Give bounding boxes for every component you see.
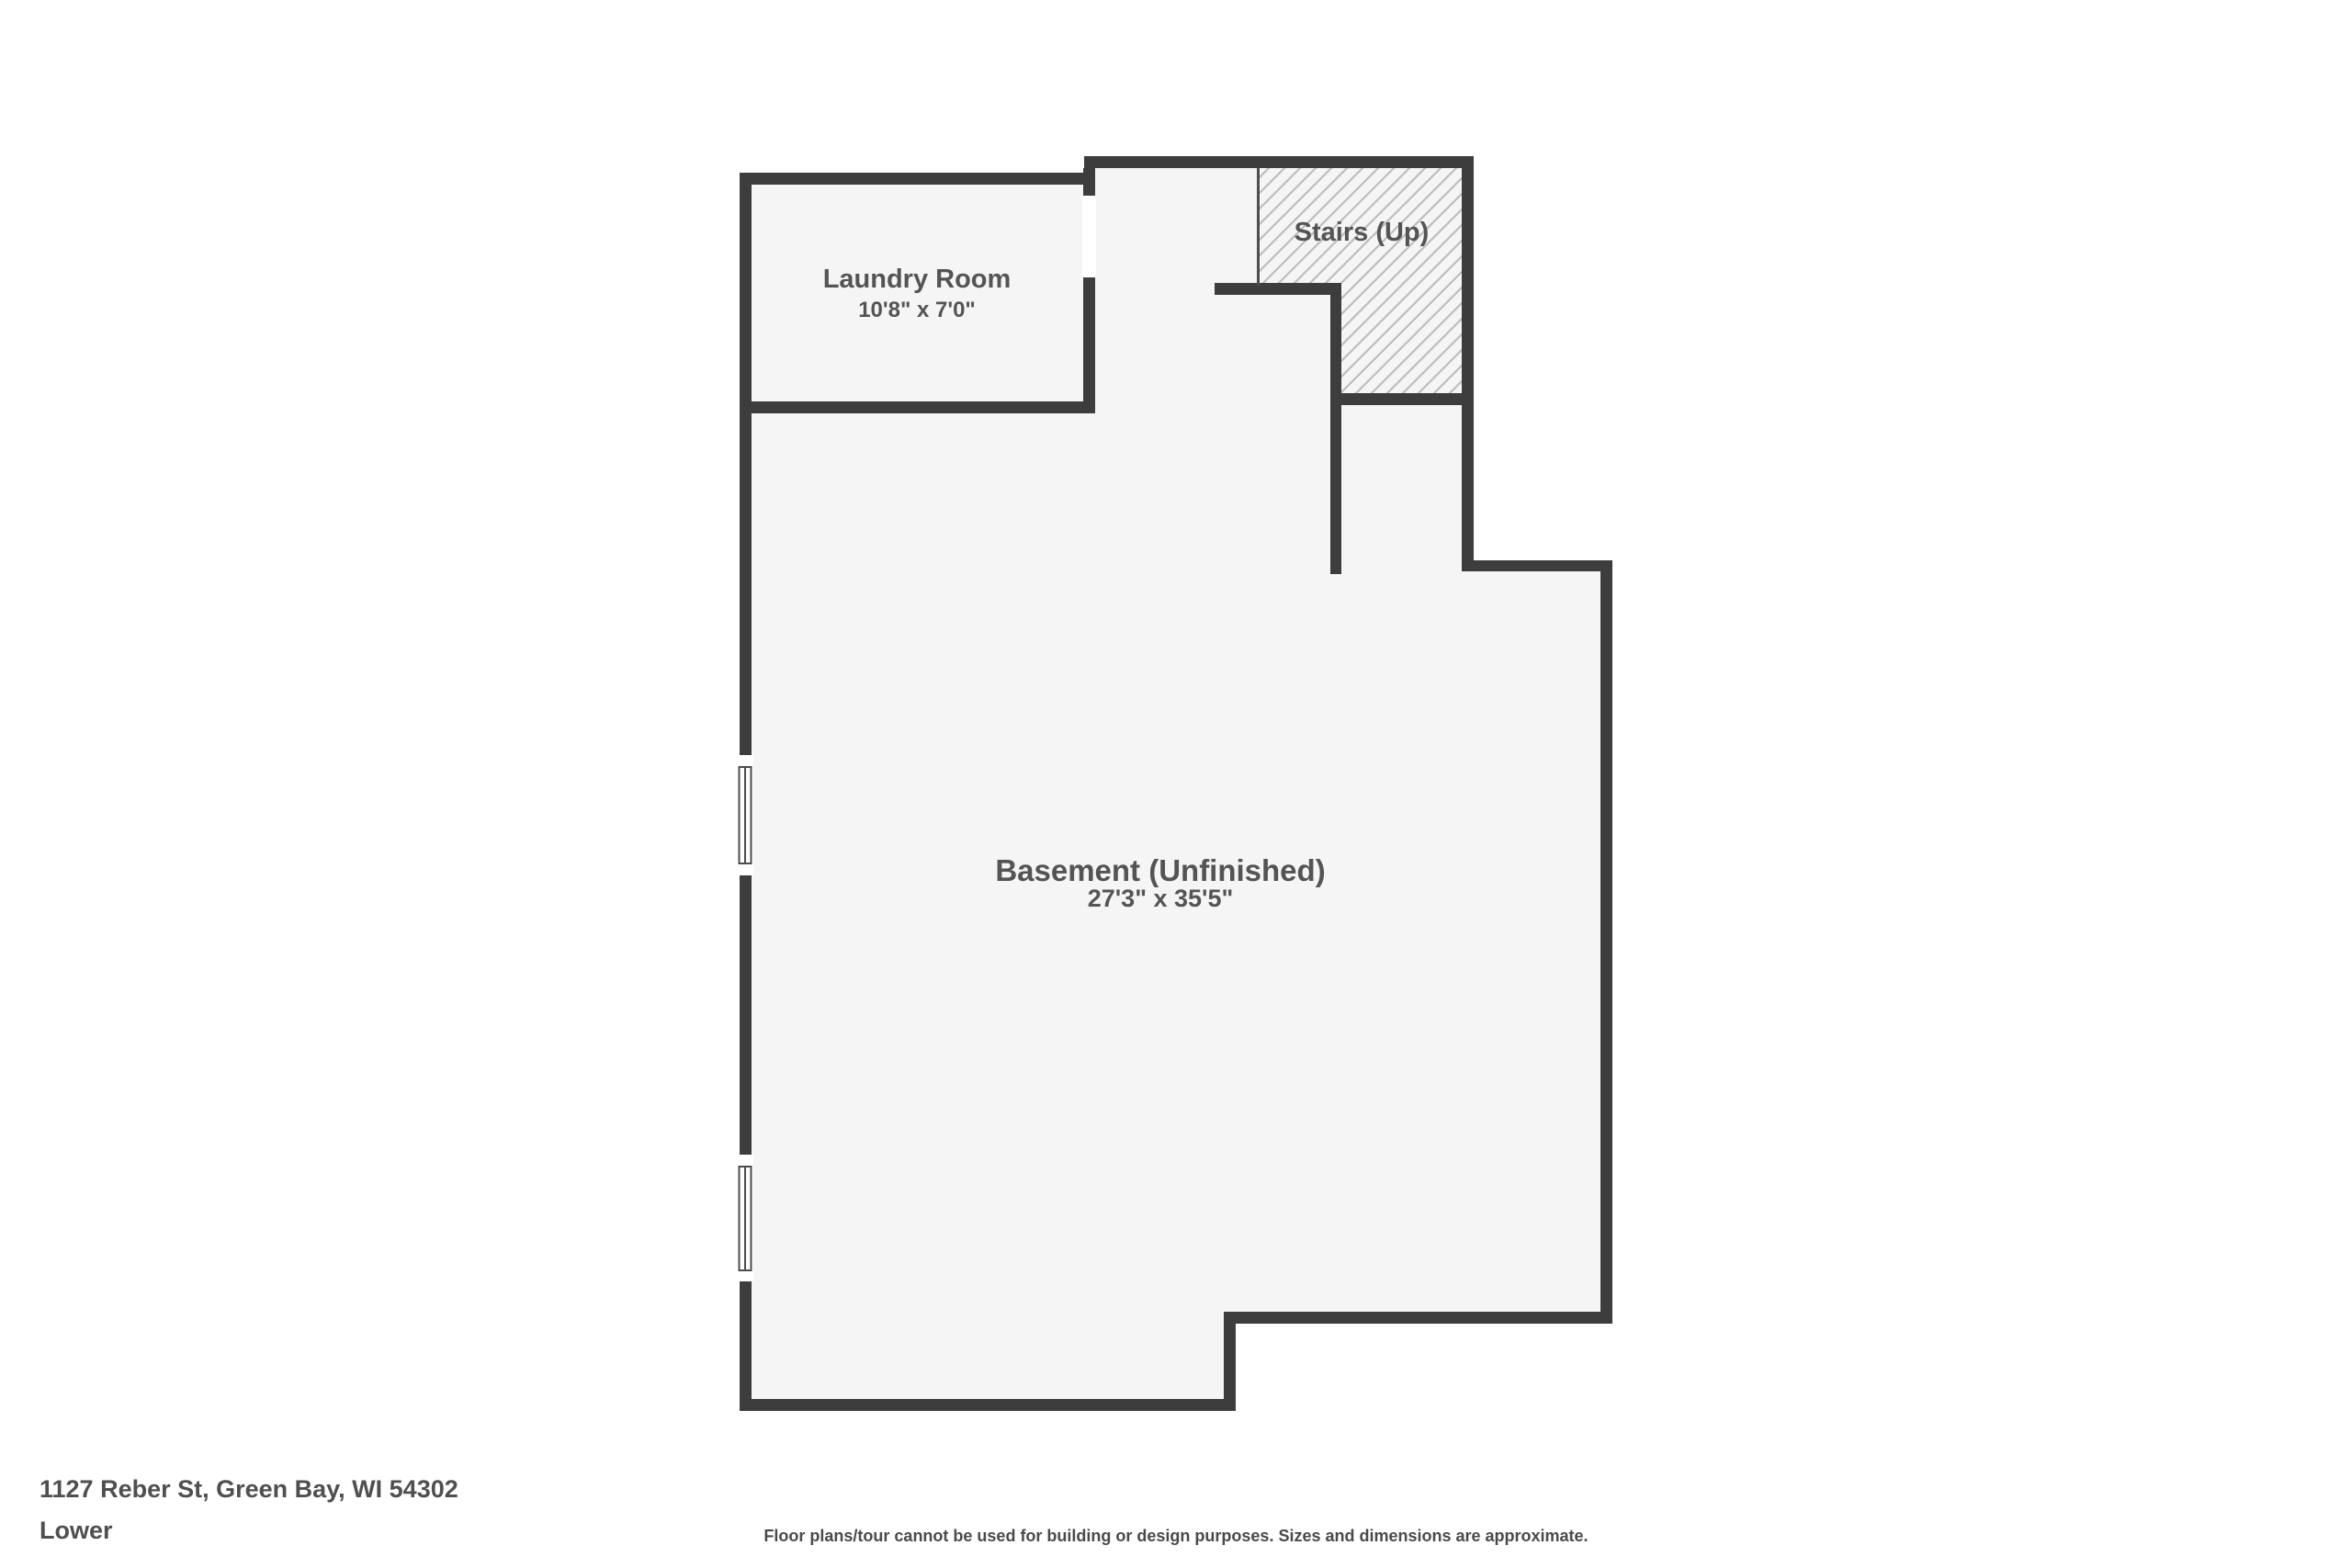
wall-upper-right — [1462, 156, 1474, 571]
wall-notch — [1224, 1312, 1236, 1411]
wall-right — [1600, 560, 1612, 1324]
window-icon — [737, 755, 753, 875]
laundry-room-dimensions: 10'8" x 7'0" — [858, 298, 976, 322]
floorplan-canvas: Laundry Room 10'8" x 7'0" Stairs (Up) Ba… — [0, 0, 2352, 1568]
floor-area — [740, 156, 1612, 1411]
basement-label: Basement (Unfinished) — [995, 853, 1325, 887]
stairs-label: Stairs (Up) — [1295, 218, 1430, 247]
stairs-border-line — [1257, 168, 1260, 286]
laundry-room-label: Laundry Room — [823, 265, 1012, 294]
window-icon — [737, 1155, 753, 1281]
basement-dimensions: 27'3" x 35'5" — [1088, 885, 1234, 912]
wall-stairs-bottom — [1330, 393, 1474, 405]
wall-bottom-left — [740, 1399, 1236, 1411]
wall-step — [1462, 560, 1612, 571]
wall-laundry-bottom — [740, 401, 1095, 413]
wall-stairs-landing — [1215, 283, 1341, 295]
wall-bottom-right — [1224, 1312, 1612, 1324]
wall-corridor-top — [1084, 156, 1474, 168]
address-label: 1127 Reber St, Green Bay, WI 54302 — [40, 1475, 458, 1504]
floorplan-page: Laundry Room 10'8" x 7'0" Stairs (Up) Ba… — [0, 0, 2352, 1568]
disclaimer-text: Floor plans/tour cannot be used for buil… — [0, 1527, 2352, 1546]
wall-laundry-top — [740, 173, 1095, 185]
wall-landing-down — [1330, 283, 1341, 574]
door-opening — [1082, 196, 1096, 277]
